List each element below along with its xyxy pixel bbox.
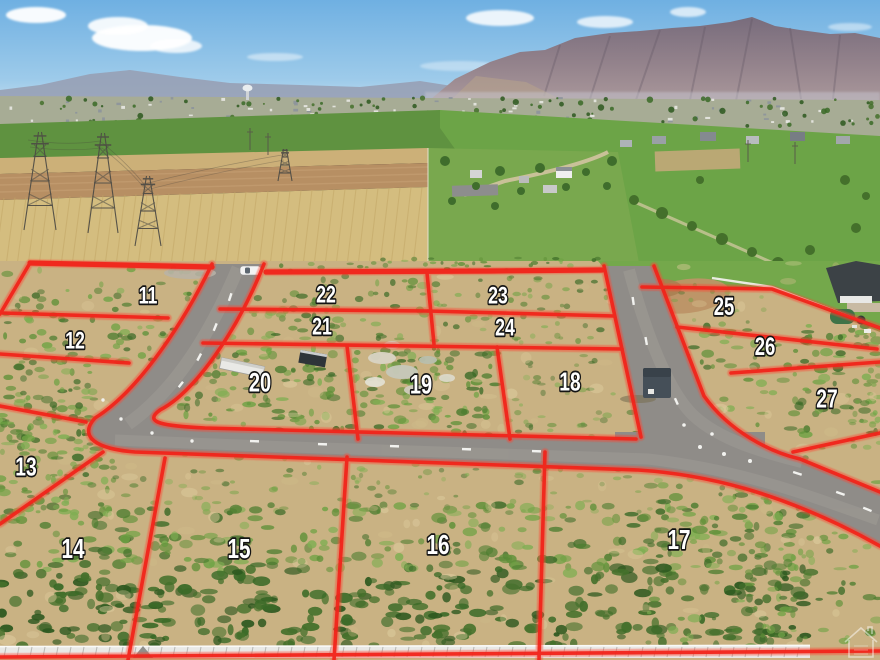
svg-text:12: 12: [65, 328, 85, 354]
lot-label-19: 19: [410, 370, 432, 401]
lot-label-25: 25: [714, 292, 735, 320]
svg-text:26: 26: [755, 332, 776, 360]
svg-text:21: 21: [312, 314, 332, 340]
svg-text:17: 17: [667, 525, 690, 556]
aerial-photo: 1112222123242526272019181314151617: [0, 0, 880, 660]
lot-label-20: 20: [249, 368, 271, 399]
lot-label-27: 27: [816, 383, 837, 413]
svg-text:19: 19: [410, 370, 432, 401]
lot-label-22: 22: [316, 282, 336, 308]
aerial-scene: 1112222123242526272019181314151617: [0, 0, 880, 660]
lot-label-23: 23: [488, 283, 508, 309]
svg-text:20: 20: [249, 368, 271, 399]
lot-label-12: 12: [65, 328, 85, 354]
svg-text:13: 13: [15, 451, 36, 481]
field-wheat: [0, 187, 428, 268]
lot-label-18: 18: [559, 366, 581, 396]
lot-label-11: 11: [139, 283, 158, 309]
svg-text:22: 22: [316, 282, 336, 308]
lot-label-15: 15: [227, 534, 250, 565]
lot-label-26: 26: [755, 332, 776, 360]
lot-label-24: 24: [495, 315, 515, 341]
lot-label-13: 13: [15, 451, 36, 481]
svg-text:23: 23: [488, 283, 508, 309]
svg-text:25: 25: [714, 292, 735, 320]
lot-label-17: 17: [667, 525, 690, 556]
svg-text:14: 14: [61, 534, 84, 565]
svg-text:11: 11: [139, 283, 158, 309]
svg-text:16: 16: [426, 530, 449, 561]
svg-text:27: 27: [816, 383, 837, 413]
svg-text:24: 24: [495, 315, 515, 341]
lot-label-14: 14: [61, 534, 84, 565]
lot-label-16: 16: [426, 530, 449, 561]
field-farm-center: [428, 148, 640, 268]
lot-label-21: 21: [312, 314, 332, 340]
svg-text:15: 15: [227, 534, 250, 565]
svg-text:18: 18: [559, 366, 581, 396]
